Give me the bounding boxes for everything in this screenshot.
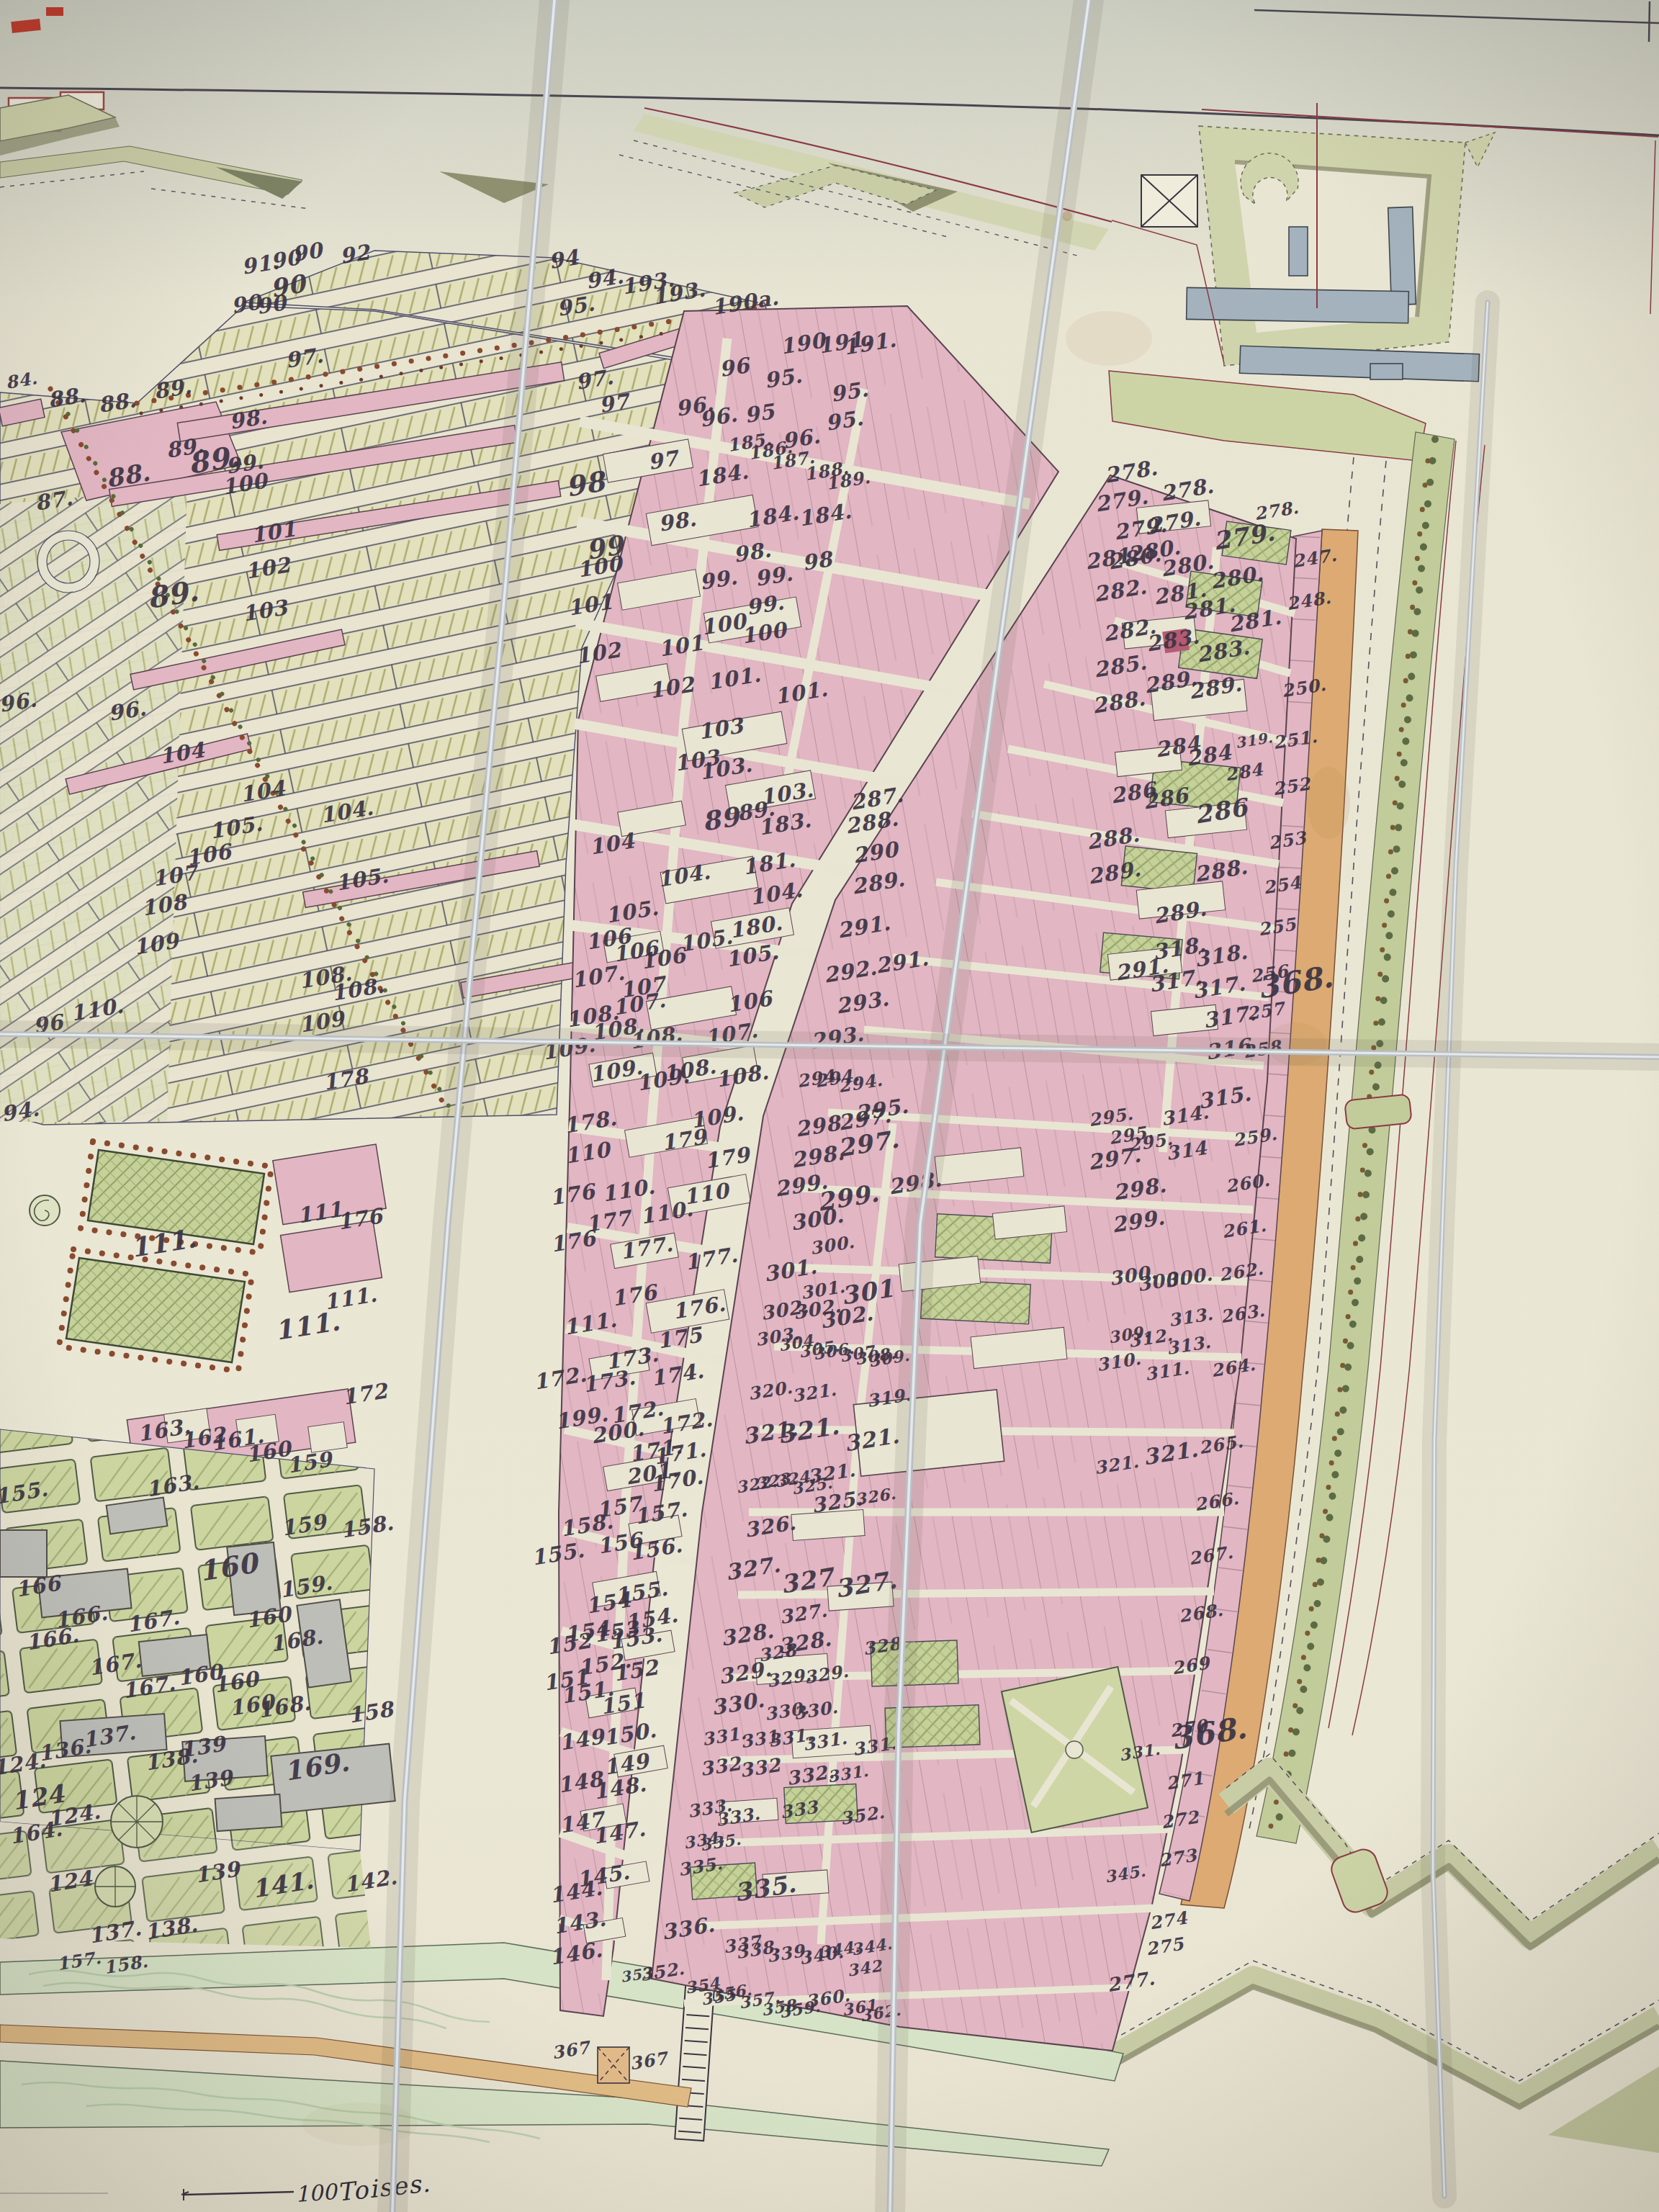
parcel-number: 274 [1148, 1907, 1190, 1934]
parcel-number: 289. [850, 866, 907, 899]
parcel-number: 111. [272, 1305, 342, 1346]
parcel-number: 280. [1208, 561, 1265, 593]
parcel-number: 104. [655, 859, 712, 891]
parcel-number: 266. [1193, 1488, 1241, 1515]
parcel-number: 279. [1211, 517, 1277, 555]
parcel-number: 327. [833, 1565, 899, 1603]
parcel-number: 297. [1086, 1142, 1143, 1174]
parcel-number: 164. [7, 1816, 64, 1848]
parcel-number: 313. [1167, 1303, 1215, 1331]
scale-value: 100 [295, 2179, 338, 2207]
parcel-number: 98. [732, 537, 773, 567]
parcel-number: 248. [1285, 587, 1333, 614]
parcel-number: 168. [268, 1624, 325, 1656]
parcel-number: 98 [563, 464, 607, 503]
parcel-number: 330. [709, 1687, 766, 1719]
parcel-number: 178 [321, 1064, 370, 1095]
parcel-number: 99. [745, 590, 786, 620]
parcel-number: 110. [68, 993, 125, 1025]
parcel-number: 326. [743, 1511, 798, 1542]
parcel-number: 292. [822, 955, 878, 987]
parcel-number: 99. [698, 565, 739, 595]
parcel-number: 96. [0, 687, 39, 717]
parcel-number: 97. [574, 364, 616, 395]
parcel-number: 110. [600, 1174, 657, 1206]
parcel-number: 92 [338, 240, 372, 269]
parcel-number: 109. [540, 1032, 597, 1064]
parcel-number: 104. [747, 877, 804, 909]
parcel-number: 273 [1158, 1845, 1199, 1871]
parcel-number: 177. [618, 1231, 675, 1264]
parcel-number: 166. [24, 1622, 81, 1655]
parcel-number: 336. [660, 1912, 716, 1944]
parcel-number: 173. [580, 1364, 637, 1397]
parcel-number: 97 [597, 389, 631, 418]
parcel-number: 293. [809, 1021, 866, 1053]
parcel-number: 96 [717, 353, 751, 382]
parcel-number: 110. [638, 1196, 695, 1228]
parcel-number: 352. [839, 1802, 886, 1829]
parcel-number: 321. [1141, 1437, 1200, 1470]
parcel-number: 100 [575, 551, 624, 583]
parcel-number: 158 [346, 1696, 395, 1728]
parcel-number: 286 [1192, 792, 1249, 829]
parcel-number: 104 [158, 737, 207, 769]
parcel-number: 290 [851, 837, 900, 868]
parcel-number: 96. [107, 696, 148, 726]
parcel-number: 143. [551, 1906, 608, 1938]
parcel-number: 109 [297, 1006, 346, 1038]
parcel-number: 310. [1095, 1348, 1143, 1375]
parcel-number: 105. [207, 811, 264, 843]
parcel-number: 104. [318, 795, 375, 827]
parcel-number: 331. [1118, 1740, 1162, 1765]
parcel-number: 279. [1093, 484, 1150, 516]
parcel-number: 254 [1262, 872, 1303, 899]
parcel-number: 259. [1231, 1123, 1279, 1151]
parcel-number: 89. [144, 573, 201, 615]
parcel-number: 88. [46, 382, 88, 413]
parcel-number: 96 [31, 1010, 65, 1038]
parcel-number: 155. [0, 1476, 50, 1509]
parcel-number: 285. [1092, 649, 1148, 682]
parcel-number: 159 [279, 1509, 328, 1541]
parcel-number: 319. [1234, 729, 1274, 752]
parcel-number: 108. [714, 1059, 770, 1092]
parcel-number: 291. [873, 945, 930, 978]
parcel-number: 88. [96, 387, 138, 418]
map-photo: 91.9090929090909494.193.193.190a.95.1901… [0, 0, 1659, 2212]
parcel-number: 269 [1171, 1653, 1212, 1679]
parcel-number: 184. [796, 498, 853, 531]
parcel-number: 124. [0, 1748, 48, 1780]
parcel-number: 158. [338, 1510, 395, 1542]
parcel-number: 319. [866, 1384, 913, 1411]
parcel-number: 124 [45, 1866, 94, 1897]
parcel-number: 101 [249, 516, 298, 548]
parcel-number: 332 [738, 1754, 782, 1782]
parcel-number: 167. [125, 1604, 181, 1637]
parcel-number: 158. [102, 1951, 150, 1978]
parcel-number: 255 [1257, 914, 1298, 940]
parcel-number: 160 [197, 1546, 260, 1587]
parcel-labels: 91.9090929090909494.193.193.190a.95.1901… [0, 0, 1659, 2212]
parcel-number: 260. [1224, 1169, 1272, 1197]
parcel-number: 101 [566, 589, 615, 621]
parcel-number: 84. [4, 367, 40, 393]
parcel-number: 291. [835, 910, 892, 943]
parcel-number: 167. [86, 1647, 143, 1680]
parcel-number: 88. [104, 457, 153, 493]
parcel-number: 96. [698, 402, 739, 432]
parcel-number: 335. [732, 1869, 799, 1907]
parcel-number: 251. [1272, 726, 1319, 753]
parcel-number: 263. [1219, 1300, 1267, 1327]
parcel-number: 345. [1104, 1861, 1148, 1887]
parcel-number: 184. [693, 459, 750, 491]
parcel-number: 104 [588, 828, 637, 860]
parcel-number: 103 [696, 713, 745, 745]
parcel-number: 184. [744, 500, 801, 532]
parcel-number: 166 [14, 1570, 63, 1602]
parcel-number: 105. [603, 895, 660, 927]
parcel-number: 282. [1092, 574, 1148, 606]
parcel-number: 155. [529, 1537, 586, 1570]
parcel-number: 149 [557, 1724, 606, 1755]
parcel-number: 264. [1210, 1354, 1257, 1381]
parcel-number: 95. [829, 377, 871, 407]
parcel-number: 331. [851, 1732, 899, 1760]
parcel-number: 277. [1105, 1967, 1156, 1996]
parcel-number: 102 [647, 672, 696, 703]
parcel-number: 194. [0, 1096, 42, 1128]
parcel-number: 176. [670, 1291, 727, 1323]
parcel-number: 279. [1146, 505, 1202, 538]
parcel-number: 288. [1192, 854, 1249, 886]
parcel-number: 177. [683, 1242, 739, 1274]
parcel-number: 109 [132, 928, 181, 960]
parcel-number: 110 [563, 1137, 612, 1169]
parcel-number: 103 [240, 595, 289, 626]
parcel-number: 175 [655, 1322, 704, 1354]
parcel-number: 104 [238, 775, 287, 807]
parcel-number: 138. [143, 1912, 199, 1944]
parcel-number: 107. [703, 1017, 760, 1050]
parcel-number: 94 [547, 245, 580, 274]
parcel-number: 176 [610, 1280, 659, 1311]
parcel-number: 95. [763, 363, 804, 393]
parcel-number: 160 [244, 1601, 293, 1633]
parcel-number: 367 [551, 2037, 592, 2064]
parcel-number: 181. [740, 847, 797, 879]
parcel-number: 137. [86, 1915, 143, 1948]
parcel-number: 172. [657, 1406, 714, 1439]
parcel-number: 172 [341, 1378, 390, 1410]
parcel-number: 252 [1272, 773, 1313, 800]
parcel-number: 328 [862, 1633, 903, 1660]
parcel-number: 146. [547, 1937, 604, 1969]
parcel-number: 144. [547, 1875, 604, 1907]
parcel-number: 101 [657, 630, 706, 662]
parcel-number: 293. [834, 986, 891, 1018]
parcel-number: 289. [1086, 856, 1143, 889]
parcel-number: 99. [753, 561, 795, 591]
parcel-number: 159. [277, 1570, 334, 1602]
parcel-number: 98. [657, 506, 698, 536]
parcel-number: 139 [193, 1856, 242, 1888]
parcel-number: 267. [1187, 1542, 1235, 1569]
parcel-number: 107. [570, 960, 626, 992]
parcel-number: 163. [144, 1469, 201, 1501]
parcel-number: 139 [179, 1731, 228, 1763]
parcel-number: 97 [646, 446, 680, 475]
parcel-number: 250. [1280, 674, 1328, 701]
parcel-number: 278. [1159, 473, 1215, 505]
parcel-number: 111. [562, 1307, 619, 1339]
parcel-number: 111. [128, 1223, 198, 1263]
parcel-number: 321. [842, 1423, 902, 1457]
parcel-number: 333 [779, 1797, 820, 1823]
parcel-number: 288. [1090, 685, 1147, 718]
parcel-number: 157. [55, 1947, 103, 1974]
parcel-number: 167. [120, 1671, 177, 1703]
parcel-number: 275 [1145, 1933, 1186, 1960]
parcel-number: 321. [1093, 1451, 1141, 1478]
parcel-number: 102 [574, 637, 623, 669]
parcel-number: 300. [1163, 1263, 1214, 1292]
parcel-number: 314. [1159, 1101, 1210, 1130]
parcel-number: 176 [548, 1179, 597, 1210]
parcel-number: 159 [285, 1447, 334, 1478]
parcel-number: 320. [747, 1377, 794, 1404]
parcel-number: 97. [284, 343, 325, 373]
parcel-number: 247. [1291, 544, 1339, 572]
parcel-number: 253 [1267, 827, 1308, 854]
parcel-number: 107 [150, 860, 199, 891]
parcel-number: 98 [800, 547, 834, 575]
parcel-number: 327. [724, 1552, 783, 1586]
parcel-number: 278. [1102, 455, 1159, 487]
parcel-number: 90 [269, 269, 308, 302]
parcel-number: 108 [140, 889, 189, 921]
parcel-number: 95 [742, 399, 776, 428]
parcel-number: 190a. [710, 285, 781, 320]
parcel-number: 169. [282, 1746, 351, 1786]
parcel-number: 142. [342, 1864, 399, 1897]
parcel-number: 298. [886, 1166, 943, 1199]
parcel-number: 102 [243, 552, 292, 584]
parcel-number: 141. [250, 1865, 316, 1903]
parcel-number: 288. [1084, 822, 1141, 854]
parcel-number: 108. [661, 1053, 718, 1086]
parcel-number: 335. [677, 1853, 724, 1880]
parcel-number: 311. [1143, 1357, 1191, 1385]
parcel-number: 106 [725, 986, 774, 1017]
parcel-number: 179 [660, 1124, 709, 1156]
parcel-number: 265. [1197, 1431, 1245, 1458]
parcel-number: 332 [698, 1753, 742, 1781]
parcel-number: 178. [562, 1105, 619, 1138]
parcel-number: 289. [1151, 896, 1208, 928]
parcel-number: 367 [629, 2048, 670, 2074]
parcel-number: 321. [791, 1379, 838, 1406]
parcel-number: 150. [601, 1717, 658, 1750]
parcel-number: 342 [846, 1956, 884, 1979]
parcel-number: 368. [1169, 1709, 1250, 1756]
parcel-number: 89. [152, 374, 194, 404]
parcel-number: 298. [789, 1140, 846, 1172]
parcel-number: 327. [778, 1599, 829, 1628]
parcel-number: 271 [1165, 1768, 1206, 1794]
parcel-number: 179 [703, 1142, 752, 1174]
parcel-number: 101. [773, 676, 829, 709]
parcel-number: 268. [1177, 1599, 1225, 1627]
parcel-number: 176 [549, 1226, 598, 1257]
parcel-number: 172. [531, 1362, 588, 1394]
parcel-number: 98. [228, 404, 269, 434]
parcel-number: 90 [290, 238, 324, 266]
parcel-number: 105. [333, 863, 390, 895]
parcel-number: 87. [33, 485, 75, 516]
parcel-number: 172. [608, 1395, 665, 1428]
parcel-number: 298. [1111, 1172, 1168, 1205]
parcel-number: 300. [788, 1202, 845, 1235]
parcel-number: 95. [824, 405, 866, 436]
parcel-number: 327 [778, 1562, 835, 1599]
parcel-number: 95. [555, 291, 597, 321]
parcel-number: 262. [1218, 1258, 1265, 1285]
parcel-number: 101. [706, 662, 763, 694]
parcel-number: 139 [186, 1765, 235, 1797]
parcel-number: 261. [1220, 1215, 1268, 1242]
parcel-number: 180. [727, 910, 784, 943]
parcel-number: 299. [1110, 1205, 1166, 1237]
parcel-number: 283. [1195, 634, 1251, 667]
parcel-number: 272 [1160, 1807, 1201, 1833]
parcel-number: 300. [809, 1231, 856, 1259]
